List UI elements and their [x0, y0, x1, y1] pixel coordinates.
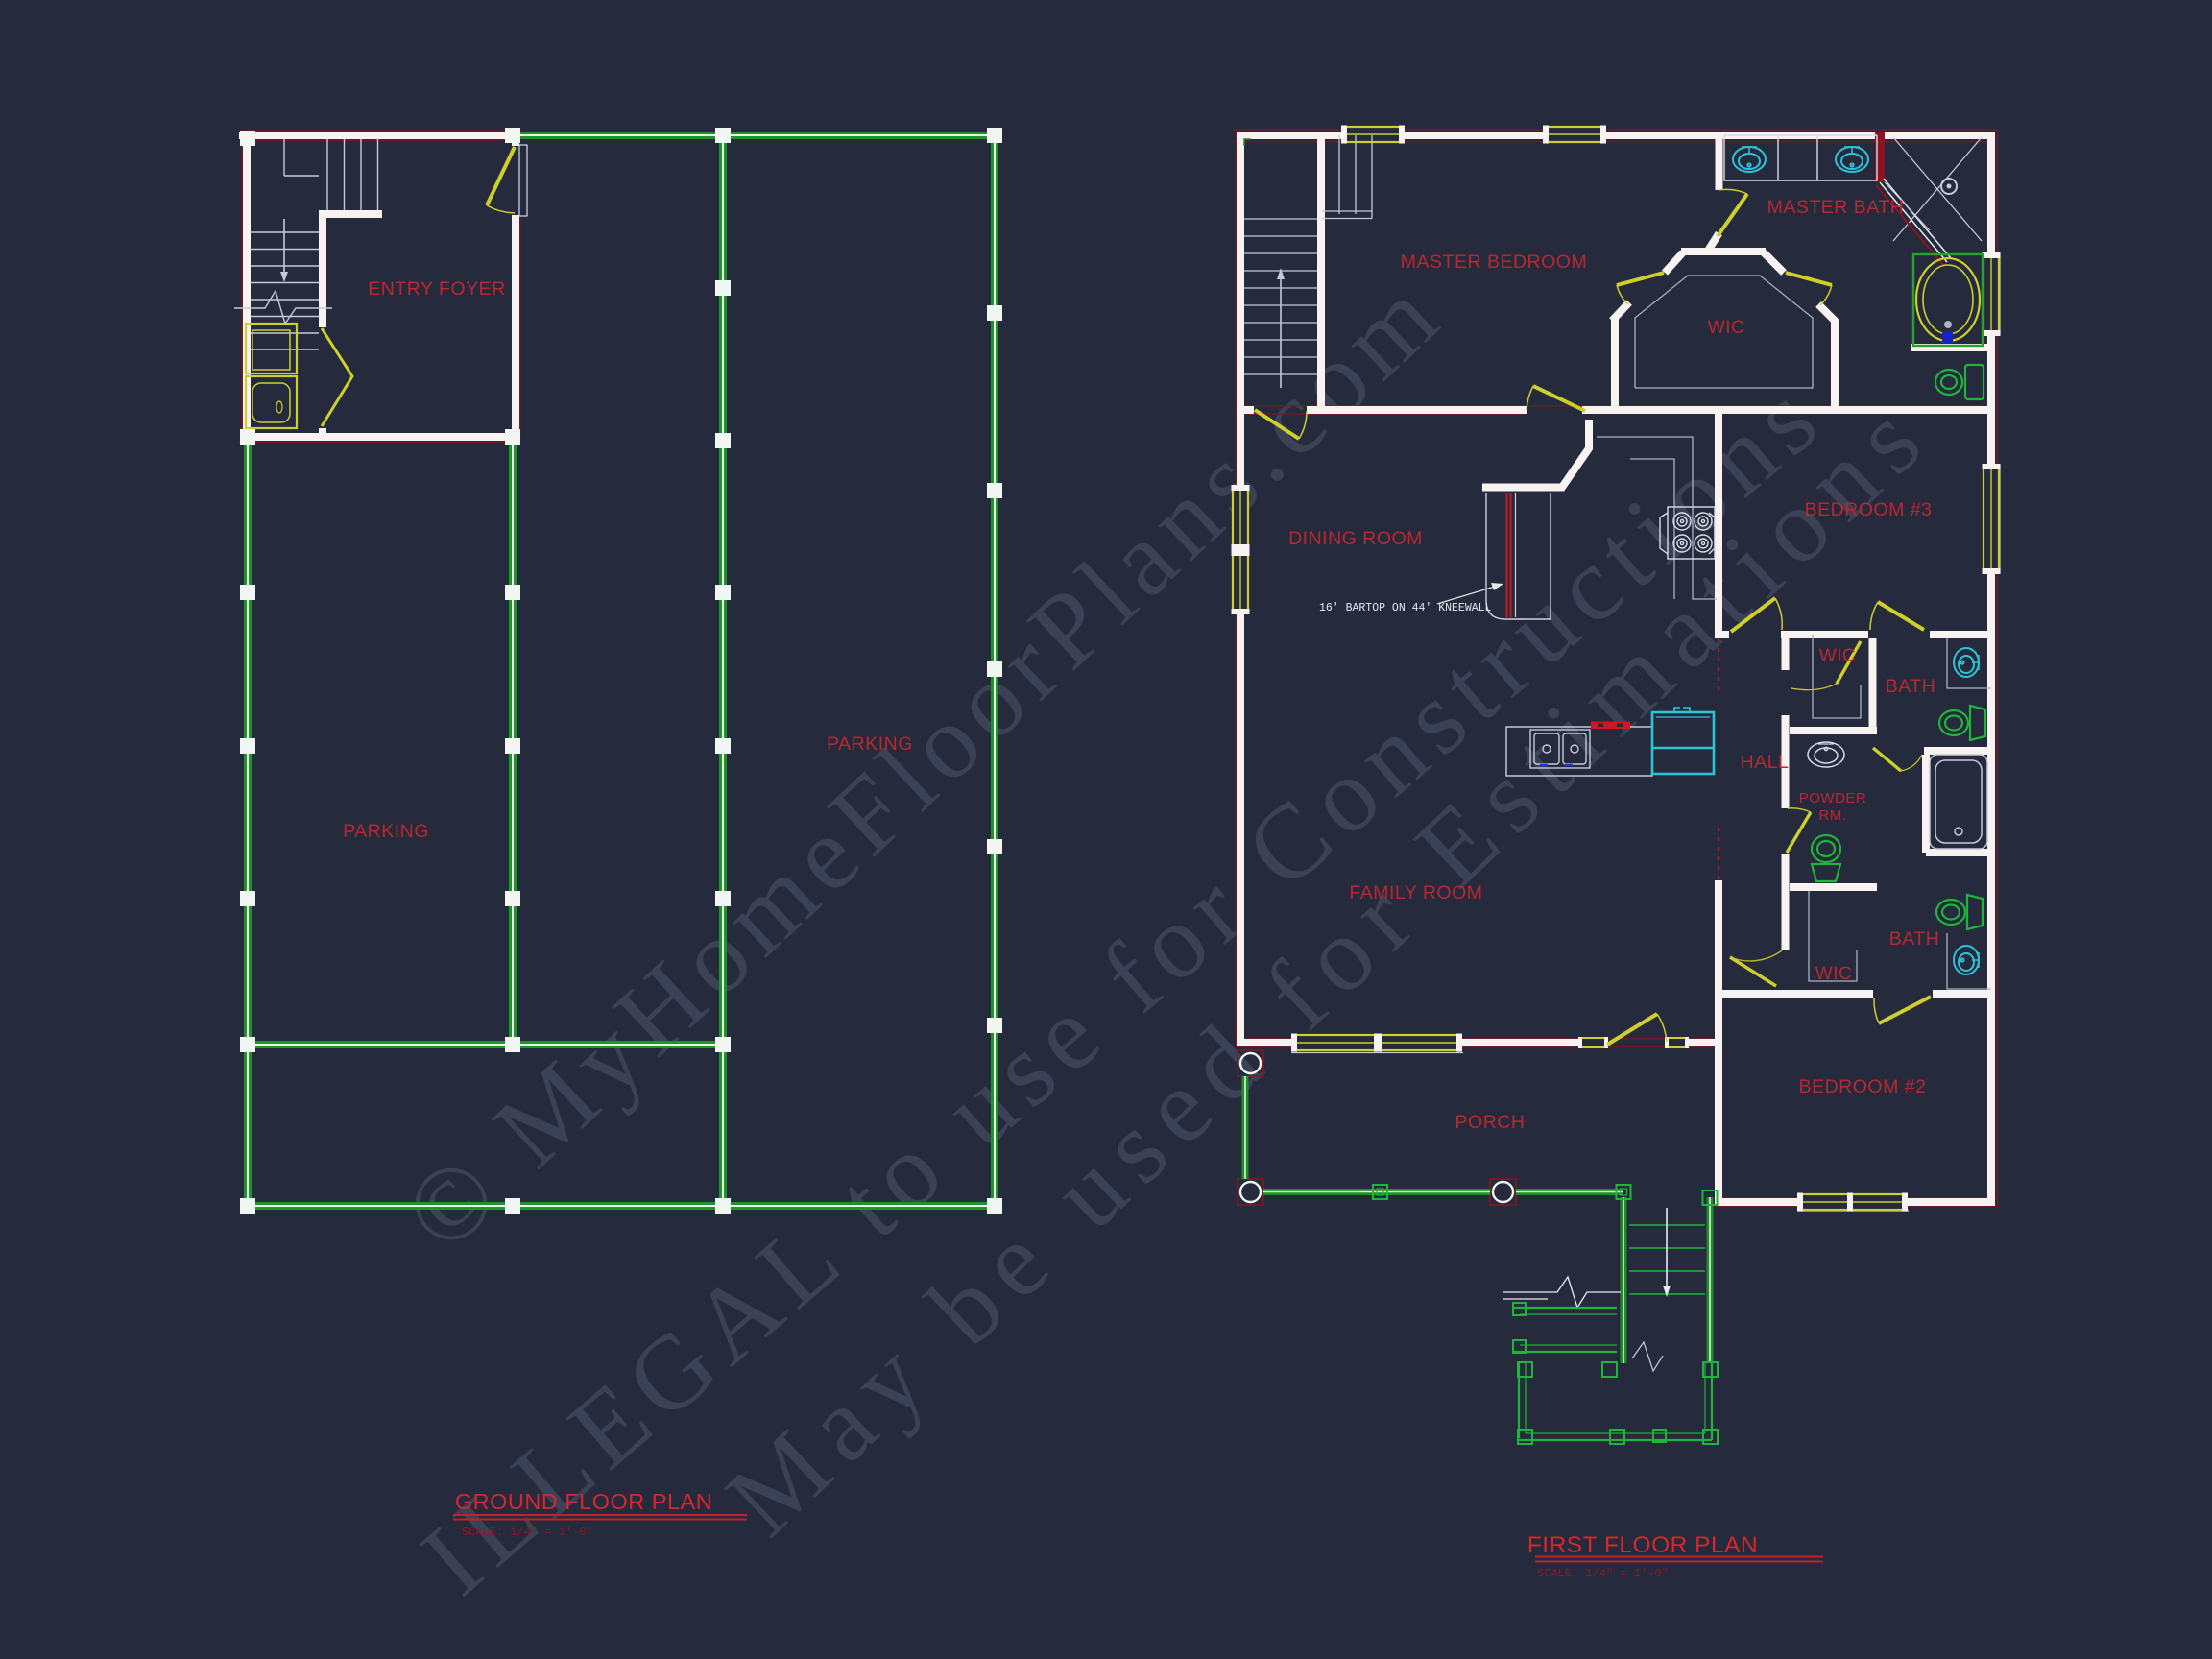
svg-text:SCALE: 1/4" = 1'-0": SCALE: 1/4" = 1'-0" — [1537, 1567, 1669, 1580]
svg-text:MASTER BEDROOM: MASTER BEDROOM — [1401, 252, 1587, 273]
svg-text:MASTER BATH: MASTER BATH — [1767, 197, 1905, 218]
svg-text:RM.: RM. — [1819, 807, 1847, 824]
svg-text:HALL: HALL — [1741, 752, 1790, 773]
svg-text:WIC: WIC — [1819, 646, 1856, 666]
svg-text:PORCH: PORCH — [1455, 1112, 1526, 1133]
svg-text:WIC: WIC — [1708, 318, 1744, 338]
svg-text:DINING ROOM: DINING ROOM — [1288, 528, 1423, 549]
svg-text:FAMILY ROOM: FAMILY ROOM — [1349, 882, 1482, 903]
svg-text:BEDROOM #2: BEDROOM #2 — [1799, 1076, 1927, 1097]
svg-text:BATH: BATH — [1889, 928, 1940, 950]
svg-text:FIRST FLOOR PLAN: FIRST FLOOR PLAN — [1527, 1532, 1758, 1558]
svg-text:ENTRY FOYER: ENTRY FOYER — [368, 278, 505, 300]
svg-text:WIC: WIC — [1815, 964, 1852, 984]
svg-text:BATH: BATH — [1886, 676, 1936, 697]
svg-text:PARKING: PARKING — [343, 821, 429, 842]
svg-text:POWDER: POWDER — [1799, 790, 1867, 806]
svg-text:PARKING: PARKING — [827, 733, 913, 755]
svg-text:GROUND FLOOR PLAN: GROUND FLOOR PLAN — [455, 1489, 712, 1514]
svg-text:SCALE: 1/4" = 1'-0": SCALE: 1/4" = 1'-0" — [462, 1526, 593, 1539]
svg-text:16' BARTOP ON 44' KNEEWALL: 16' BARTOP ON 44' KNEEWALL — [1319, 602, 1492, 614]
svg-text:BEDROOM #3: BEDROOM #3 — [1805, 499, 1933, 520]
